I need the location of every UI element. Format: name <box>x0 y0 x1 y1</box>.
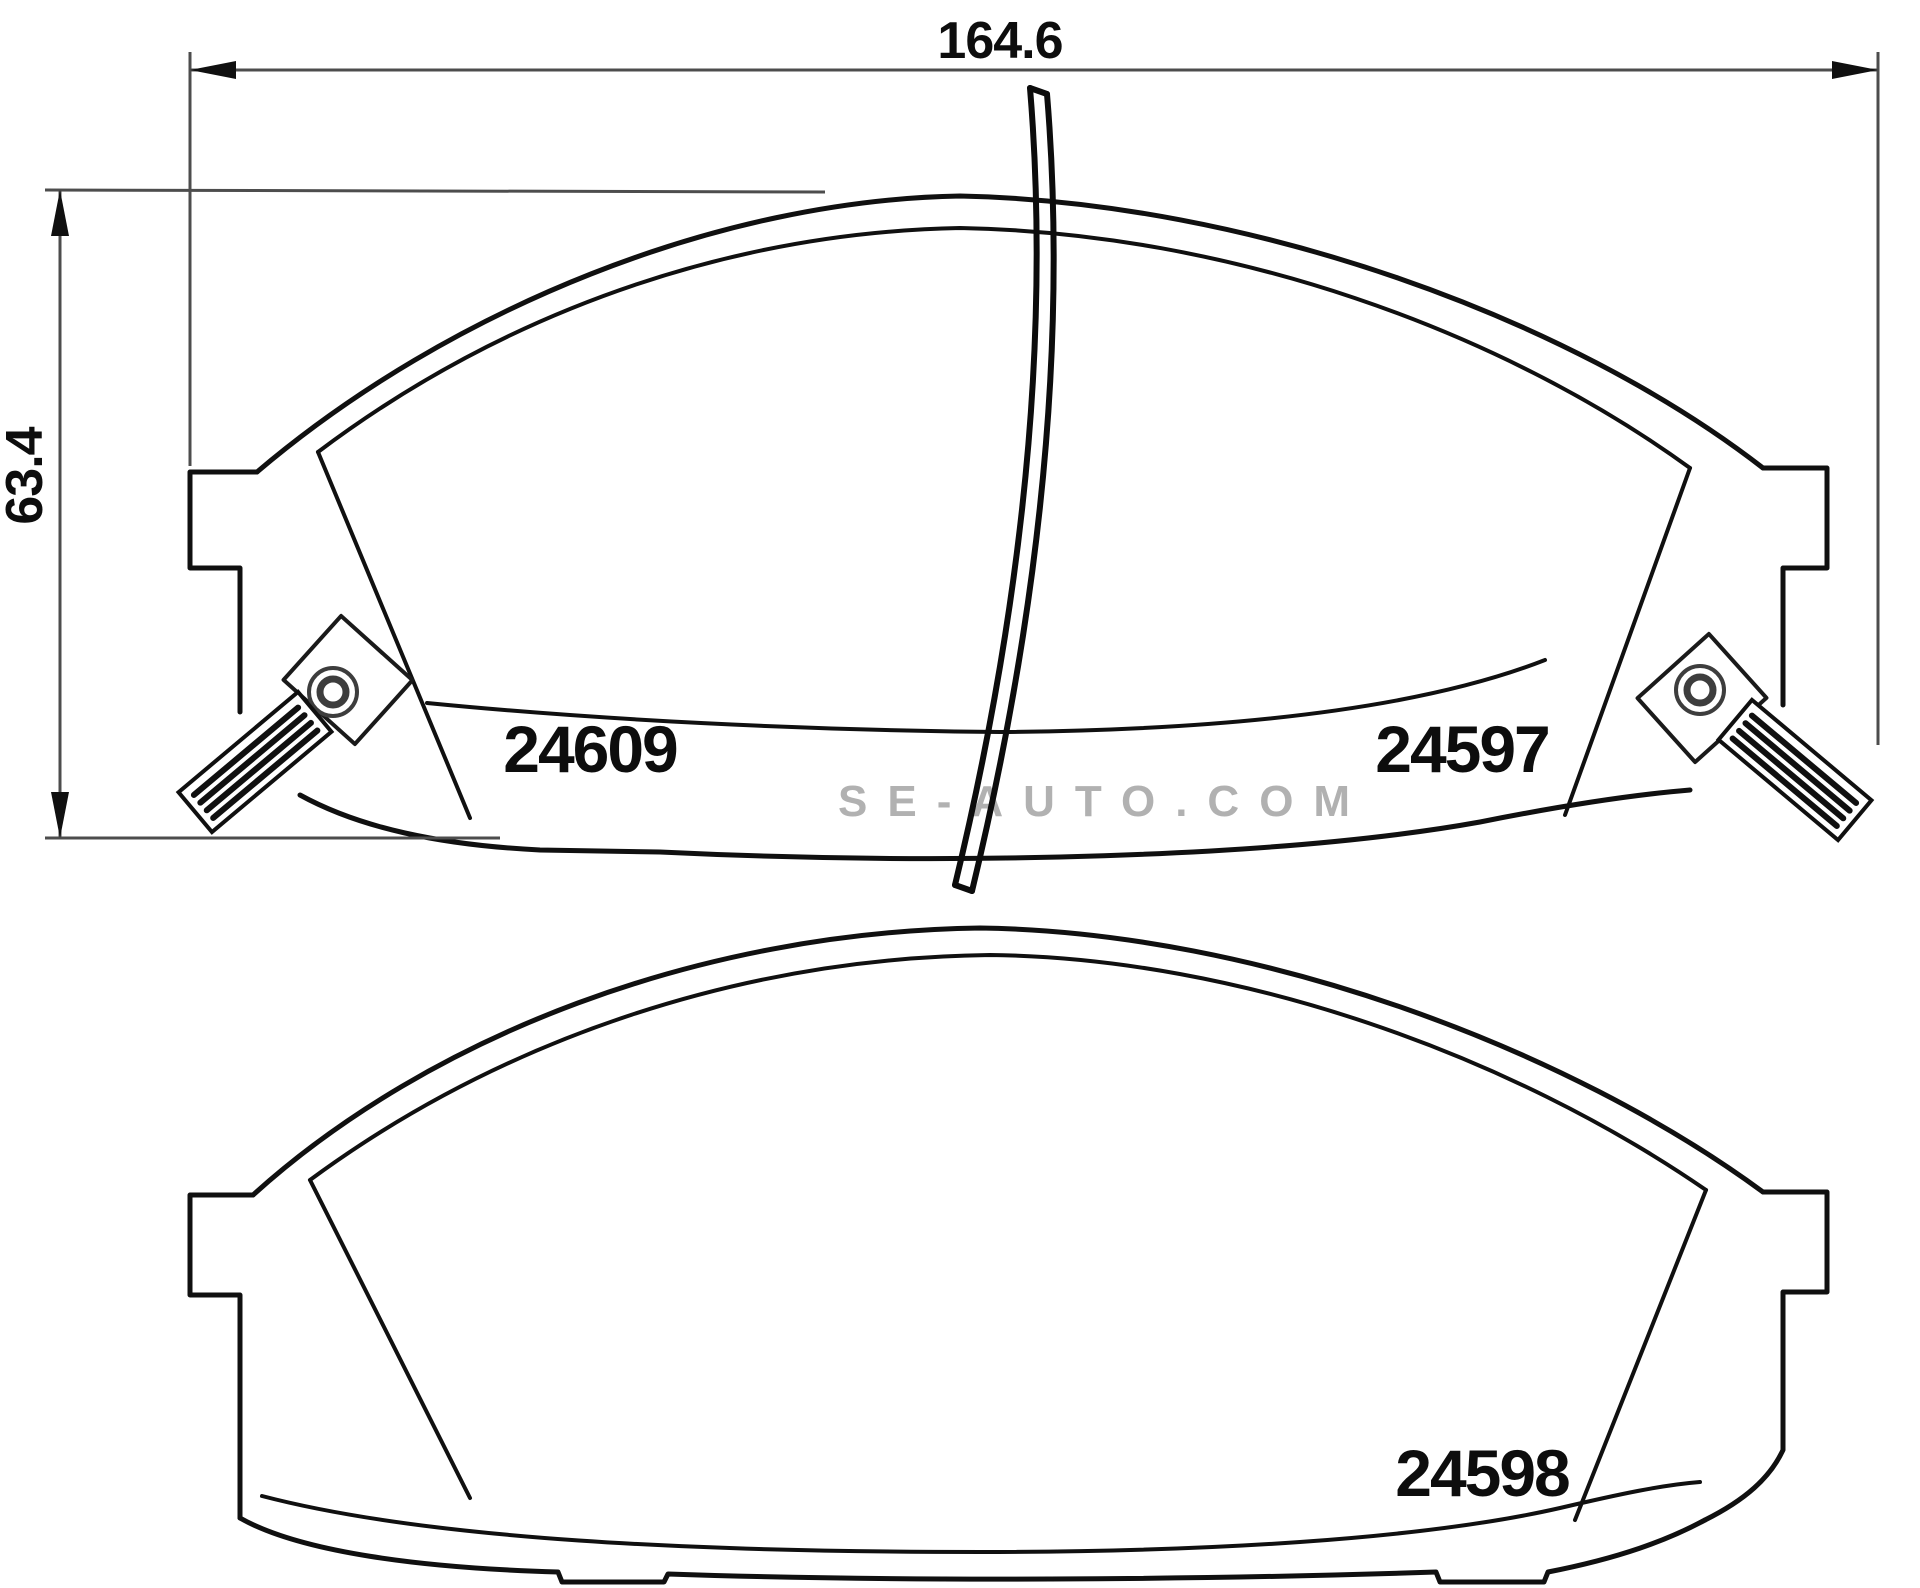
lower-pad-left-diagonal <box>310 1180 470 1498</box>
height-arrow-top <box>51 190 69 236</box>
right-rivet-hole-inner <box>1687 677 1713 703</box>
height-extension-top <box>45 190 825 192</box>
upper-pad-left-edge <box>190 472 257 712</box>
left-rivet-hole-inner <box>320 679 346 705</box>
part-number-top-right: 24597 <box>1375 712 1549 786</box>
upper-pad-right-edge <box>1763 468 1827 705</box>
upper-right-ear <box>1638 634 1872 840</box>
lower-pad-right-diagonal <box>1575 1190 1706 1520</box>
height-dimension-label: 63.4 <box>0 426 54 524</box>
upper-pad-outer-arc <box>257 196 1763 472</box>
part-number-bottom: 24598 <box>1395 1436 1569 1510</box>
lower-pad-left-edge <box>190 1195 253 1518</box>
width-dimension-label: 164.6 <box>937 12 1062 70</box>
dimension-height: 63.4 <box>0 190 825 838</box>
upper-pad-left-diagonal <box>318 452 470 818</box>
brake-pad-drawing: SE-AUTO.COM <box>0 0 1920 1588</box>
height-arrow-bottom <box>51 792 69 838</box>
width-arrow-right <box>1832 61 1878 79</box>
brake-pad-lower <box>190 928 1827 1582</box>
lower-pad-inner-arc <box>310 955 1706 1190</box>
right-clip-band <box>1719 700 1872 840</box>
brake-pad-upper <box>179 196 1872 859</box>
technical-drawing-canvas: SE-AUTO.COM <box>0 0 1920 1588</box>
width-arrow-left <box>190 61 236 79</box>
lower-pad-right-edge <box>1705 1192 1827 1520</box>
upper-pad-inner-arc <box>318 228 1690 468</box>
lower-pad-outer-arc <box>253 928 1763 1195</box>
left-clip-band <box>179 692 332 832</box>
sensor-pin <box>955 88 1054 891</box>
upper-left-ear <box>179 616 413 832</box>
part-number-top-left: 24609 <box>503 712 677 786</box>
watermark-text: SE-AUTO.COM <box>838 777 1370 826</box>
upper-pad-right-diagonal <box>1565 468 1690 815</box>
